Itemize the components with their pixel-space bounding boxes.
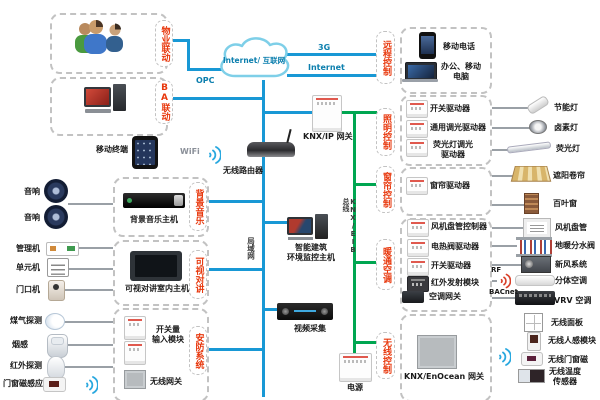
speaker2-icon	[44, 205, 68, 229]
internet-cloud: Internet/ 互联网	[214, 34, 294, 92]
fancoil-unit-icon	[523, 218, 551, 238]
wifi-signal-icon-security	[82, 374, 98, 396]
input-module-label: 开关量 输入模块	[148, 325, 188, 344]
switch-actuator-label: 开关驱动器	[430, 104, 470, 114]
line-gas	[64, 321, 113, 323]
unit-station-icon	[47, 258, 69, 277]
line-3g	[287, 53, 376, 56]
knx-system-diagram: 物业联动 BA联动 背景音乐 可视对讲 安防系统 远程控制 照明控制 窗帘控制 …	[0, 0, 600, 400]
line-knx-hvac	[353, 261, 377, 264]
line-knx-wireless	[353, 341, 377, 344]
pir-label: 红外探测	[10, 361, 42, 371]
cloud-label: Internet/ 互联网	[218, 55, 290, 66]
line-bacnet	[488, 297, 517, 299]
line-fancoil	[488, 227, 524, 229]
wireless-doormag-center	[527, 356, 536, 361]
hvac-switch-actuator-label: 开关驱动器	[431, 261, 471, 271]
wireless-panel-label: 无线面板	[551, 318, 583, 328]
wifi-signal-icon	[205, 144, 221, 166]
line-to-host	[262, 221, 290, 224]
wireless-doormag-icon	[521, 352, 543, 366]
wireless-gateway-label: 无线网关	[150, 377, 182, 387]
line-lan-trunk	[262, 80, 265, 397]
pill-ba: BA联动	[155, 80, 173, 124]
mobile-terminal-label: 移动终端	[96, 145, 128, 155]
tablet-icon	[132, 136, 158, 169]
fancoil-controller-icon	[407, 219, 429, 237]
smoke-detector-dome	[51, 337, 64, 345]
freshair-unit-icon	[521, 256, 551, 273]
mgmt-detail-2	[67, 246, 75, 251]
wireless-gateway-icon	[124, 370, 146, 389]
label-internet: Internet	[308, 63, 345, 72]
ba-computer-screen	[86, 89, 109, 105]
label-wifi: WiFi	[180, 147, 200, 156]
hvac-switch-actuator-icon	[407, 258, 429, 276]
line-door	[64, 289, 113, 291]
people-icon	[72, 18, 126, 62]
curtain-actuator-label: 窗帘驱动器	[430, 181, 470, 191]
ir-transmitter-label: 红外发射模块	[431, 278, 479, 288]
av-knob-left	[282, 308, 289, 315]
freshair-fan	[525, 260, 533, 268]
mgmt-detail-1	[50, 246, 56, 251]
line-bgm	[204, 200, 262, 203]
bgm-knob	[174, 195, 183, 206]
line-blinds	[488, 204, 525, 206]
label-bacnet: BACnet	[489, 288, 518, 296]
ir-transmitter-icon	[407, 276, 429, 292]
doormag-center	[49, 381, 59, 387]
vrv-vents	[519, 294, 551, 297]
line-unit	[68, 268, 113, 270]
vrv-ac-icon	[515, 291, 555, 305]
blinds-label: 百叶窗	[553, 199, 577, 209]
cfl-lamp-icon	[526, 95, 550, 115]
mgmt-station-icon	[46, 242, 79, 256]
line-ba	[172, 97, 265, 100]
panel-divider-h	[526, 323, 541, 324]
bgm-host-label: 背景音乐主机	[130, 215, 178, 225]
av-knob-right	[321, 308, 328, 315]
vrv-ac-label: VRV 空调	[554, 296, 591, 306]
intercom-host-icon	[130, 251, 182, 281]
video-capture-icon	[277, 303, 333, 320]
manifold-label: 地暖分水阀	[555, 241, 595, 251]
line-speakers	[68, 203, 113, 205]
wireless-doormag-label: 无线门窗磁	[548, 355, 588, 365]
pir-detector-icon	[47, 356, 65, 379]
line-smoke	[68, 344, 113, 346]
halogen-lamp-icon	[529, 120, 547, 134]
enocean-gateway-icon	[417, 335, 457, 369]
presence-lens	[530, 335, 538, 343]
ba-computer-icon	[84, 87, 111, 107]
remote-box	[400, 27, 492, 94]
ac-gateway-label: 空调网关	[429, 292, 461, 302]
fancoil-vents	[530, 224, 544, 232]
laptop-label: 办公、移动 电脑	[438, 62, 484, 81]
input-module-icon-2	[124, 341, 146, 365]
phone-icon	[419, 32, 436, 59]
split-ac-icon	[515, 275, 555, 286]
switch-actuator-icon-1	[406, 100, 428, 118]
pill-hvac: 暖通空调	[376, 239, 395, 290]
unit-label: 单元机	[16, 263, 40, 273]
doormag-sensor-icon	[43, 377, 66, 392]
fancoil-unit-label: 风机盘管	[555, 223, 587, 233]
doormag-label: 门窗磁感应	[3, 379, 43, 389]
fluorescent-dim-actuator-label: 荧光灯调光 驱动器	[428, 140, 478, 159]
dimming-actuator-label: 通用调光驱动器	[430, 123, 486, 133]
speaker1-icon	[44, 179, 68, 203]
host-keyboard-icon	[288, 237, 313, 240]
line-internet	[287, 74, 376, 77]
line-lamp1	[488, 107, 528, 109]
valve-actuator-icon	[407, 239, 429, 257]
intercom-screen	[135, 255, 177, 277]
pill-curtain: 窗帘控制	[376, 166, 395, 213]
pill-intercom: 可视对讲	[189, 250, 207, 299]
fluorescent-tube-icon	[507, 141, 552, 153]
knx-ip-gateway-label: KNX/IP 网关	[303, 132, 353, 142]
wifi-signal-icon-wireless	[495, 346, 511, 368]
phone-label: 移动电话	[443, 42, 475, 52]
video-capture-label: 视频采集	[294, 324, 326, 334]
host-monitor-icon	[287, 217, 313, 235]
ac-gateway-icon	[402, 291, 424, 303]
speaker1-label: 音响	[24, 187, 40, 197]
mgmt-label: 管理机	[16, 244, 40, 254]
pill-property: 物业联动	[155, 20, 173, 67]
fluorescent-tube-label: 荧光灯	[556, 144, 580, 154]
wireless-panel-icon	[524, 313, 543, 332]
split-ac-label: 分体空调	[555, 276, 587, 286]
label-opc: OPC	[196, 76, 215, 85]
dimming-actuator-icon	[406, 120, 428, 138]
host-monitor-screen	[289, 219, 311, 233]
power-label: 电源	[347, 383, 363, 393]
line-property-v	[187, 39, 190, 71]
monitor-host-label: 智能建筑 环境监控主机	[284, 243, 338, 262]
line-mgmt	[78, 247, 113, 249]
line-knx-curtain	[353, 183, 377, 186]
host-tower-icon	[315, 214, 328, 239]
label-knx-bus: KNX/EIB 总线	[342, 198, 356, 254]
fancoil-controller-label: 风机盘管控制器	[431, 222, 487, 232]
label-3g: 3G	[318, 43, 330, 52]
gas-detector-icon	[45, 313, 65, 330]
smoke-detector-icon	[47, 334, 68, 358]
line-manifold	[488, 245, 517, 247]
doorstation-icon	[48, 280, 65, 301]
laptop-screen	[408, 65, 434, 78]
gas-label: 煤气探测	[10, 316, 42, 326]
av-display	[294, 310, 316, 312]
awning-icon	[511, 166, 552, 182]
cfl-lamp-label: 节能灯	[554, 103, 578, 113]
label-lan: 局域网	[247, 237, 255, 277]
valve-actuator-label: 电热阀驱动器	[431, 242, 479, 252]
knx-ip-gateway-icon	[312, 95, 342, 132]
intercom-host-label: 可视对讲室内主机	[122, 284, 192, 294]
doorstation-camera	[53, 284, 59, 290]
pill-security: 安防系统	[189, 326, 207, 375]
speaker2-label: 音响	[24, 213, 40, 223]
manifold-icon	[516, 237, 552, 257]
fluorescent-dim-actuator-icon	[406, 139, 428, 157]
line-pir	[64, 366, 113, 368]
label-rf: RF	[491, 266, 501, 274]
router-label: 无线路由器	[223, 166, 263, 176]
input-module-icon-1	[124, 316, 146, 340]
ba-tower-icon	[113, 84, 126, 111]
wireless-presence-icon	[527, 332, 541, 351]
blinds-icon	[524, 193, 539, 214]
phone-screen	[421, 36, 434, 54]
awning-label: 遮阳卷帘	[553, 171, 585, 181]
ba-keyboard-icon	[85, 109, 111, 113]
wireless-presence-label: 无线人感模块	[548, 336, 596, 346]
line-security	[204, 348, 262, 351]
smoke-label: 烟感	[12, 340, 28, 350]
bgm-host-icon	[123, 193, 185, 208]
wireless-temp-icon	[518, 369, 545, 383]
power-supply-icon	[339, 353, 372, 382]
pill-remote: 远程控制	[376, 31, 395, 84]
line-lamp2	[488, 127, 530, 129]
enocean-gateway-label: KNX/EnOcean 网关	[398, 372, 490, 382]
doorstation-label: 门口机	[16, 285, 40, 295]
line-knx-lighting	[339, 111, 377, 114]
line-to-knxip	[262, 111, 314, 114]
laptop-base-icon	[402, 79, 438, 82]
pill-lighting: 照明控制	[376, 108, 395, 156]
pill-wireless: 无线控制	[376, 332, 395, 379]
freshair-unit-label: 新风系统	[555, 260, 587, 270]
wireless-temp-label: 无线温度 传感器	[546, 367, 584, 386]
bgm-led	[127, 198, 132, 203]
pill-bgm: 背景音乐	[189, 182, 207, 231]
curtain-actuator-icon	[406, 177, 428, 195]
router-icon	[247, 142, 295, 157]
halogen-lamp-label: 卤素灯	[554, 123, 578, 133]
